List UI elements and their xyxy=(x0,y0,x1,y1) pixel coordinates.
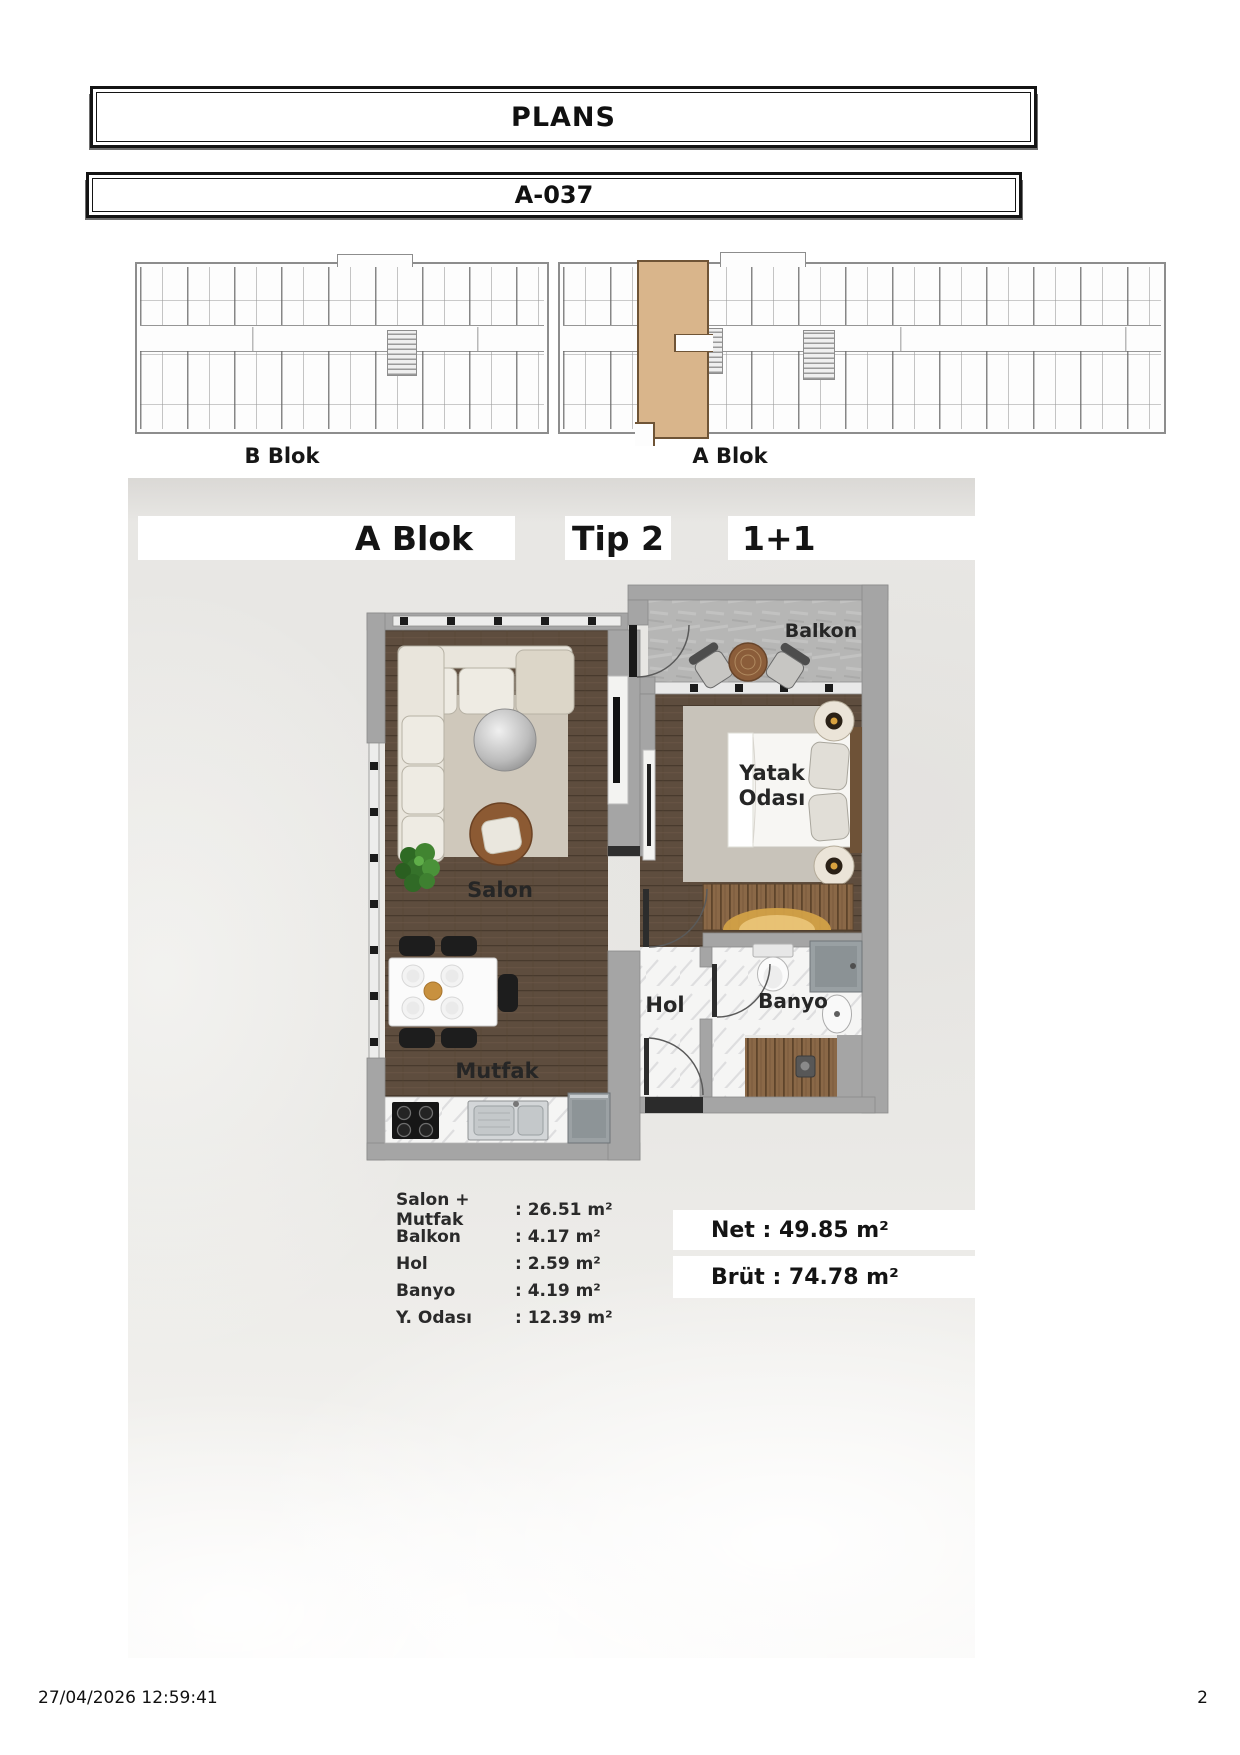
a-blok-protrusion xyxy=(720,252,806,267)
shower-fixture xyxy=(796,1056,815,1077)
area-row: Y. Odası : 12.39 m² xyxy=(396,1304,613,1331)
vanity xyxy=(810,941,862,992)
b-blok-protrusion xyxy=(337,254,413,267)
a-blok-stair-core-2 xyxy=(803,330,835,380)
b-blok-label: B Blok xyxy=(212,444,352,468)
armchair xyxy=(470,803,532,865)
area-row: Banyo : 4.19 m² xyxy=(396,1277,613,1304)
brut-total: Brüt : 74.78 m² xyxy=(673,1256,993,1298)
room-label-yatak: Yatak xyxy=(738,761,806,785)
kitchen-sink xyxy=(468,1101,548,1140)
highlighted-unit-step xyxy=(635,422,655,446)
page-number: 2 xyxy=(1197,1688,1208,1708)
room-label-banyo: Banyo xyxy=(758,989,828,1013)
room-label-hol: Hol xyxy=(645,993,684,1017)
unit-code: A-037 xyxy=(515,181,594,209)
page-title: PLANS xyxy=(511,102,616,133)
entrance-door-slab xyxy=(645,1097,703,1113)
room-label-odasi: Odası xyxy=(739,786,806,810)
plans-header-box: PLANS xyxy=(90,86,1037,148)
footer-datetime: 27/04/2026 12:59:41 xyxy=(38,1688,218,1708)
a-blok-plan xyxy=(558,262,1166,434)
room-label-mutfak: Mutfak xyxy=(455,1059,539,1083)
area-row: Balkon : 4.17 m² xyxy=(396,1223,613,1250)
kitchen-counter xyxy=(385,1093,610,1143)
area-row: Salon + Mutfak : 26.51 m² xyxy=(396,1196,613,1223)
nightstand-top xyxy=(814,701,854,741)
room-label-salon: Salon xyxy=(467,878,533,902)
area-row: Hol : 2.59 m² xyxy=(396,1250,613,1277)
a-blok-label: A Blok xyxy=(660,444,800,468)
areas-table: Salon + Mutfak : 26.51 m² Balkon : 4.17 … xyxy=(396,1196,613,1331)
document-page: PLANS A-037 B Blok A Blok A Blok Tip 2 1… xyxy=(0,0,1240,1755)
b-blok-plan xyxy=(135,262,549,434)
nightstand-bottom xyxy=(814,846,854,886)
unit-code-box: A-037 xyxy=(86,172,1022,218)
b-blok-corridor xyxy=(140,327,544,352)
appliance xyxy=(568,1093,610,1143)
floor-plan: Balkon Yatak Odası Salon Mutfak Hol Bany… xyxy=(340,520,900,1180)
round-side-table xyxy=(474,709,536,771)
b-blok-bottom-row xyxy=(140,351,544,429)
room-label-balkon: Balkon xyxy=(785,620,858,642)
dresser xyxy=(703,884,853,930)
b-blok-stair-core xyxy=(387,330,417,376)
b-blok-top-row xyxy=(140,267,544,326)
net-total: Net : 49.85 m² xyxy=(673,1210,993,1250)
highlighted-unit-notch xyxy=(674,334,713,352)
wall-end-jamb xyxy=(608,846,640,856)
